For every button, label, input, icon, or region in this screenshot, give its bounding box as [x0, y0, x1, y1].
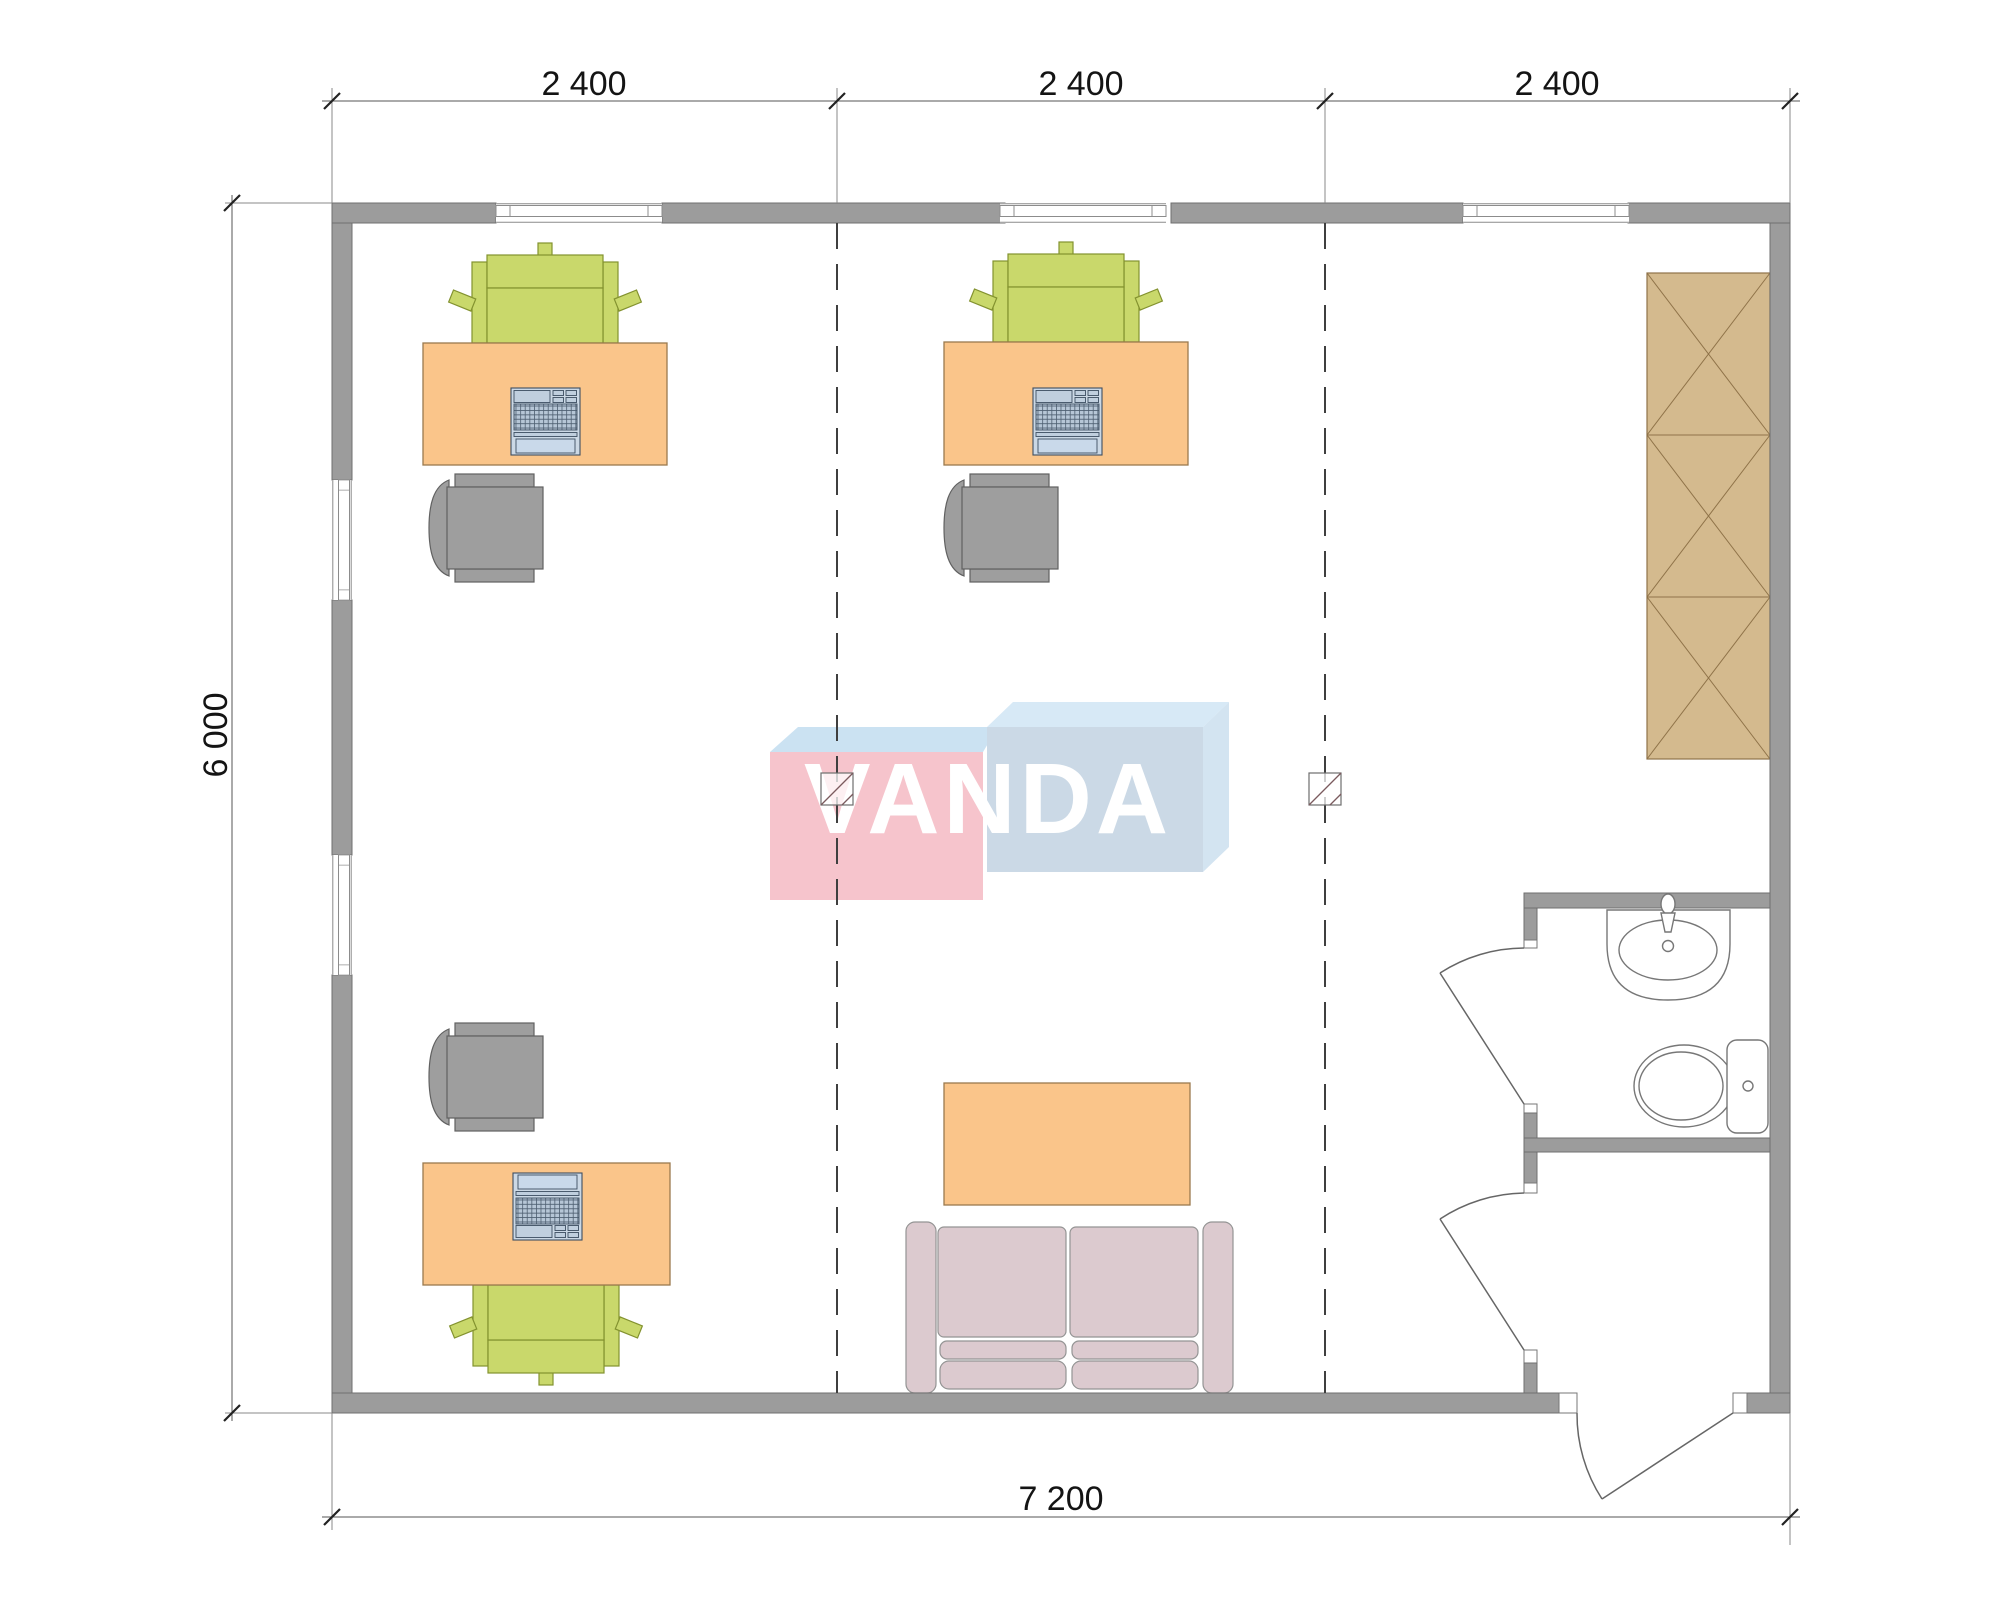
wardrobe [1647, 273, 1770, 759]
laptop-1 [511, 388, 580, 455]
window-left-1 [332, 480, 352, 600]
grid-marker-1 [821, 773, 853, 805]
window-left-2 [332, 855, 352, 975]
task-chair-3 [450, 1285, 643, 1385]
partition-bathroom-south [1524, 1138, 1770, 1152]
visitor-chair-2 [944, 474, 1058, 582]
floor-plan-drawing: VANDA 2 400 2 400 2 400 6 000 [0, 0, 2000, 1599]
visitor-chair-1 [429, 474, 543, 582]
outer-wall-bottom [332, 1393, 1790, 1413]
entrance-door-jamb-right [1733, 1393, 1747, 1413]
task-chair-2 [970, 242, 1163, 342]
watermark-text: VANDA [804, 743, 1172, 855]
sofa [906, 1222, 1233, 1393]
dimension-left: 6 000 [197, 195, 332, 1421]
hall-door-swing [1440, 1193, 1524, 1350]
coffee-table [944, 1083, 1190, 1205]
window-top-3 [1463, 203, 1629, 223]
task-chair-1 [449, 243, 642, 343]
window-top-1 [496, 203, 662, 223]
bathroom-door-swing [1440, 948, 1524, 1104]
sink [1607, 894, 1730, 1000]
laptop-3 [513, 1173, 582, 1240]
toilet [1634, 1040, 1768, 1133]
dim-top-label-2: 2 400 [1038, 65, 1123, 103]
dimension-top: 2 400 2 400 2 400 [322, 65, 1800, 203]
laptop-2 [1033, 388, 1102, 455]
entrance-door-swing [1577, 1413, 1733, 1499]
floor-plan-canvas: VANDA 2 400 2 400 2 400 6 000 [0, 0, 2000, 1599]
visitor-chair-3 [429, 1023, 543, 1131]
window-top-2 [1000, 203, 1166, 223]
dim-bottom-label: 7 200 [1018, 1480, 1103, 1518]
dim-top-label-1: 2 400 [541, 65, 626, 103]
dim-left-label: 6 000 [197, 692, 235, 777]
entrance-door-jamb-left [1559, 1393, 1577, 1413]
partition-bathroom-north [1524, 893, 1770, 908]
grid-marker-2 [1309, 773, 1341, 805]
outer-wall-right [1770, 223, 1790, 1393]
dim-top-label-3: 2 400 [1514, 65, 1599, 103]
outer-wall-left [332, 223, 352, 1393]
